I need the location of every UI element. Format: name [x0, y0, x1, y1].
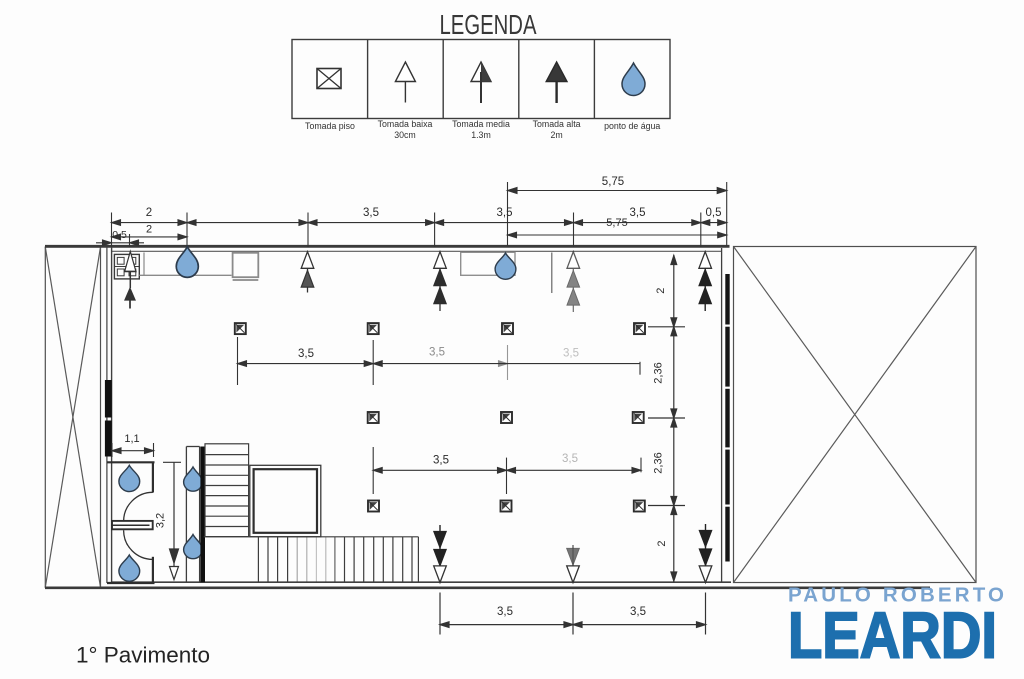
svg-text:3,5: 3,5 [363, 207, 379, 219]
svg-text:ponto de água: ponto de água [604, 121, 660, 131]
svg-text:2,36: 2,36 [653, 362, 665, 383]
svg-text:1° Pavimento: 1° Pavimento [76, 643, 210, 668]
svg-text:3,5: 3,5 [563, 348, 579, 360]
svg-text:LEGENDA: LEGENDA [440, 9, 537, 40]
svg-text:2: 2 [656, 540, 668, 546]
svg-text:Tomada alta: Tomada alta [533, 119, 581, 129]
svg-text:3,5: 3,5 [429, 347, 445, 359]
svg-text:3,5: 3,5 [497, 606, 513, 618]
svg-text:5,75: 5,75 [602, 176, 624, 188]
svg-text:3,5: 3,5 [630, 606, 646, 618]
svg-text:2m: 2m [550, 130, 562, 140]
svg-text:0,5: 0,5 [112, 229, 127, 241]
svg-text:3,5: 3,5 [298, 348, 314, 360]
svg-text:3,5: 3,5 [433, 455, 449, 467]
svg-text:2: 2 [655, 288, 667, 294]
svg-text:1,1: 1,1 [124, 433, 139, 445]
svg-text:3,2: 3,2 [155, 513, 167, 528]
svg-text:1.3m: 1.3m [471, 130, 491, 140]
svg-text:2: 2 [146, 207, 152, 219]
svg-text:2: 2 [146, 224, 152, 236]
svg-text:5,75: 5,75 [606, 217, 627, 229]
svg-text:Tomada baixa: Tomada baixa [378, 119, 433, 129]
svg-text:3,5: 3,5 [497, 207, 513, 219]
svg-text:3,5: 3,5 [562, 453, 578, 465]
svg-text:LEARDI: LEARDI [788, 599, 997, 672]
svg-text:0,5: 0,5 [706, 207, 722, 219]
svg-text:2,36: 2,36 [653, 452, 665, 473]
svg-text:30cm: 30cm [394, 130, 416, 140]
svg-text:Tomada media: Tomada media [452, 119, 510, 129]
svg-text:3,5: 3,5 [630, 207, 646, 219]
svg-text:Tomada piso: Tomada piso [305, 121, 355, 131]
